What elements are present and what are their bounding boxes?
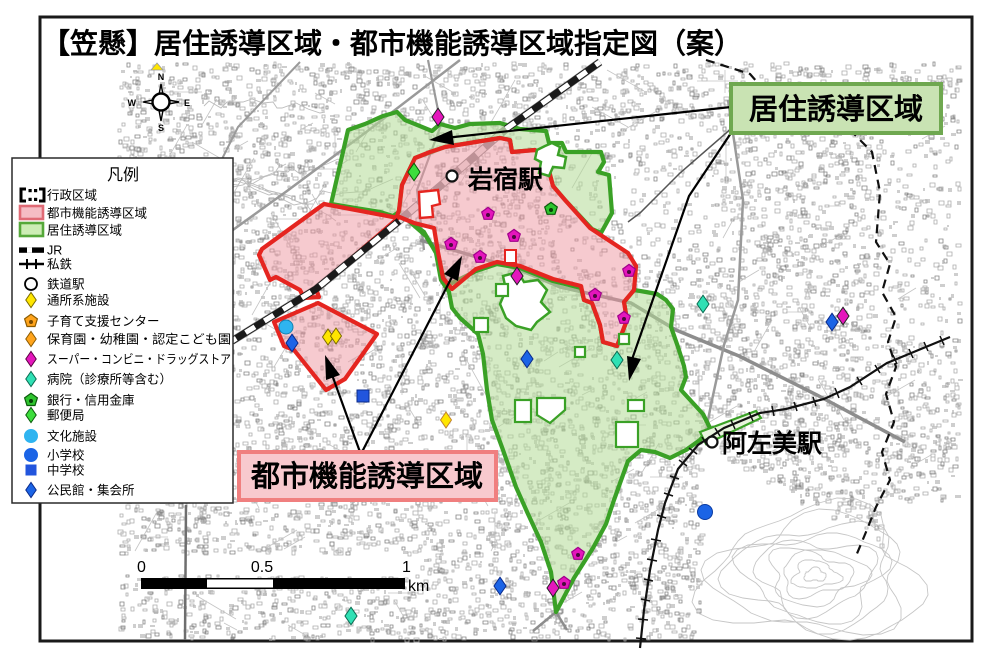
svg-text:文化施設: 文化施設 (47, 429, 98, 444)
svg-text:阿左美駅: 阿左美駅 (722, 429, 822, 458)
svg-text:凡例: 凡例 (107, 166, 139, 184)
svg-text:スーパー・コンビニ・ドラッグストア: スーパー・コンビニ・ドラッグストア (47, 353, 231, 367)
svg-text:中学校: 中学校 (47, 463, 85, 478)
svg-text:都市機能誘導区域: 都市機能誘導区域 (47, 206, 147, 221)
svg-text:通所系施設: 通所系施設 (47, 293, 110, 308)
svg-text:郵便局: 郵便局 (47, 409, 85, 423)
svg-text:鉄道駅: 鉄道駅 (47, 277, 85, 292)
svg-text:E: E (184, 98, 190, 108)
svg-text:0: 0 (137, 559, 146, 576)
svg-text:私鉄: 私鉄 (47, 257, 73, 272)
svg-text:居住誘導区域: 居住誘導区域 (47, 223, 122, 238)
svg-text:行政区域: 行政区域 (47, 189, 97, 203)
svg-text:銀行・信用金庫: 銀行・信用金庫 (47, 393, 135, 408)
svg-text:居住誘導区域: 居住誘導区域 (749, 93, 923, 126)
svg-text:JR: JR (47, 244, 62, 258)
svg-text:km: km (408, 578, 429, 595)
svg-text:小学校: 小学校 (47, 448, 85, 463)
svg-text:病院（診療所等含む）: 病院（診療所等含む） (47, 372, 172, 387)
svg-text:岩宿駅: 岩宿駅 (467, 165, 543, 194)
svg-text:【笠懸】居住誘導区域・都市機能誘導区域指定図（案）: 【笠懸】居住誘導区域・都市機能誘導区域指定図（案） (42, 27, 742, 59)
svg-text:保育園・幼稚園・認定こども園: 保育園・幼稚園・認定こども園 (47, 332, 231, 347)
svg-text:子育て支援センター: 子育て支援センター (47, 314, 160, 329)
svg-text:都市機能誘導区域: 都市機能誘導区域 (250, 459, 483, 493)
svg-text:W: W (128, 98, 137, 108)
svg-text:N: N (158, 72, 165, 82)
svg-text:0.5: 0.5 (251, 559, 273, 576)
svg-text:S: S (158, 123, 164, 133)
svg-text:1: 1 (402, 559, 411, 576)
svg-text:公民館・集会所: 公民館・集会所 (47, 483, 135, 498)
